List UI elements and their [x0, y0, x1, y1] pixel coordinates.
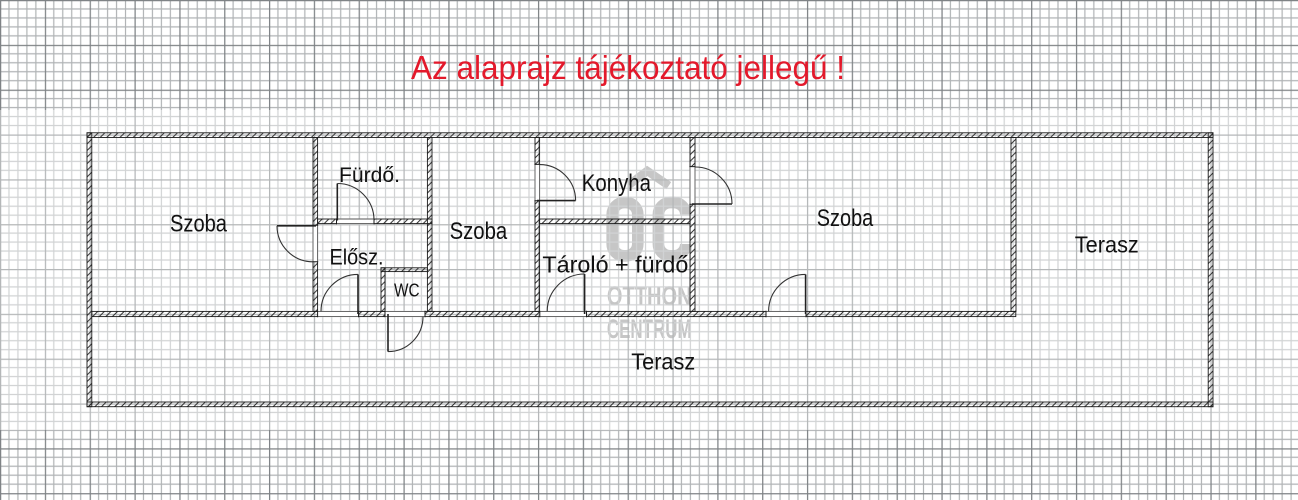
svg-text:Szoba: Szoba [170, 211, 228, 238]
svg-text:Szoba: Szoba [817, 205, 874, 232]
svg-text:Az alaprajz tájékoztató jelleg: Az alaprajz tájékoztató jellegű ! [411, 49, 845, 86]
svg-text:Fürdő.: Fürdő. [339, 163, 400, 187]
svg-text:Tároló + fürdő: Tároló + fürdő [542, 252, 688, 278]
svg-text:Konyha: Konyha [582, 170, 652, 197]
svg-text:WC: WC [394, 280, 420, 301]
svg-text:Szoba: Szoba [450, 218, 508, 245]
svg-text:Elősz.: Elősz. [330, 245, 384, 270]
svg-text:Terasz: Terasz [631, 349, 695, 375]
svg-text:Terasz: Terasz [1075, 232, 1139, 258]
